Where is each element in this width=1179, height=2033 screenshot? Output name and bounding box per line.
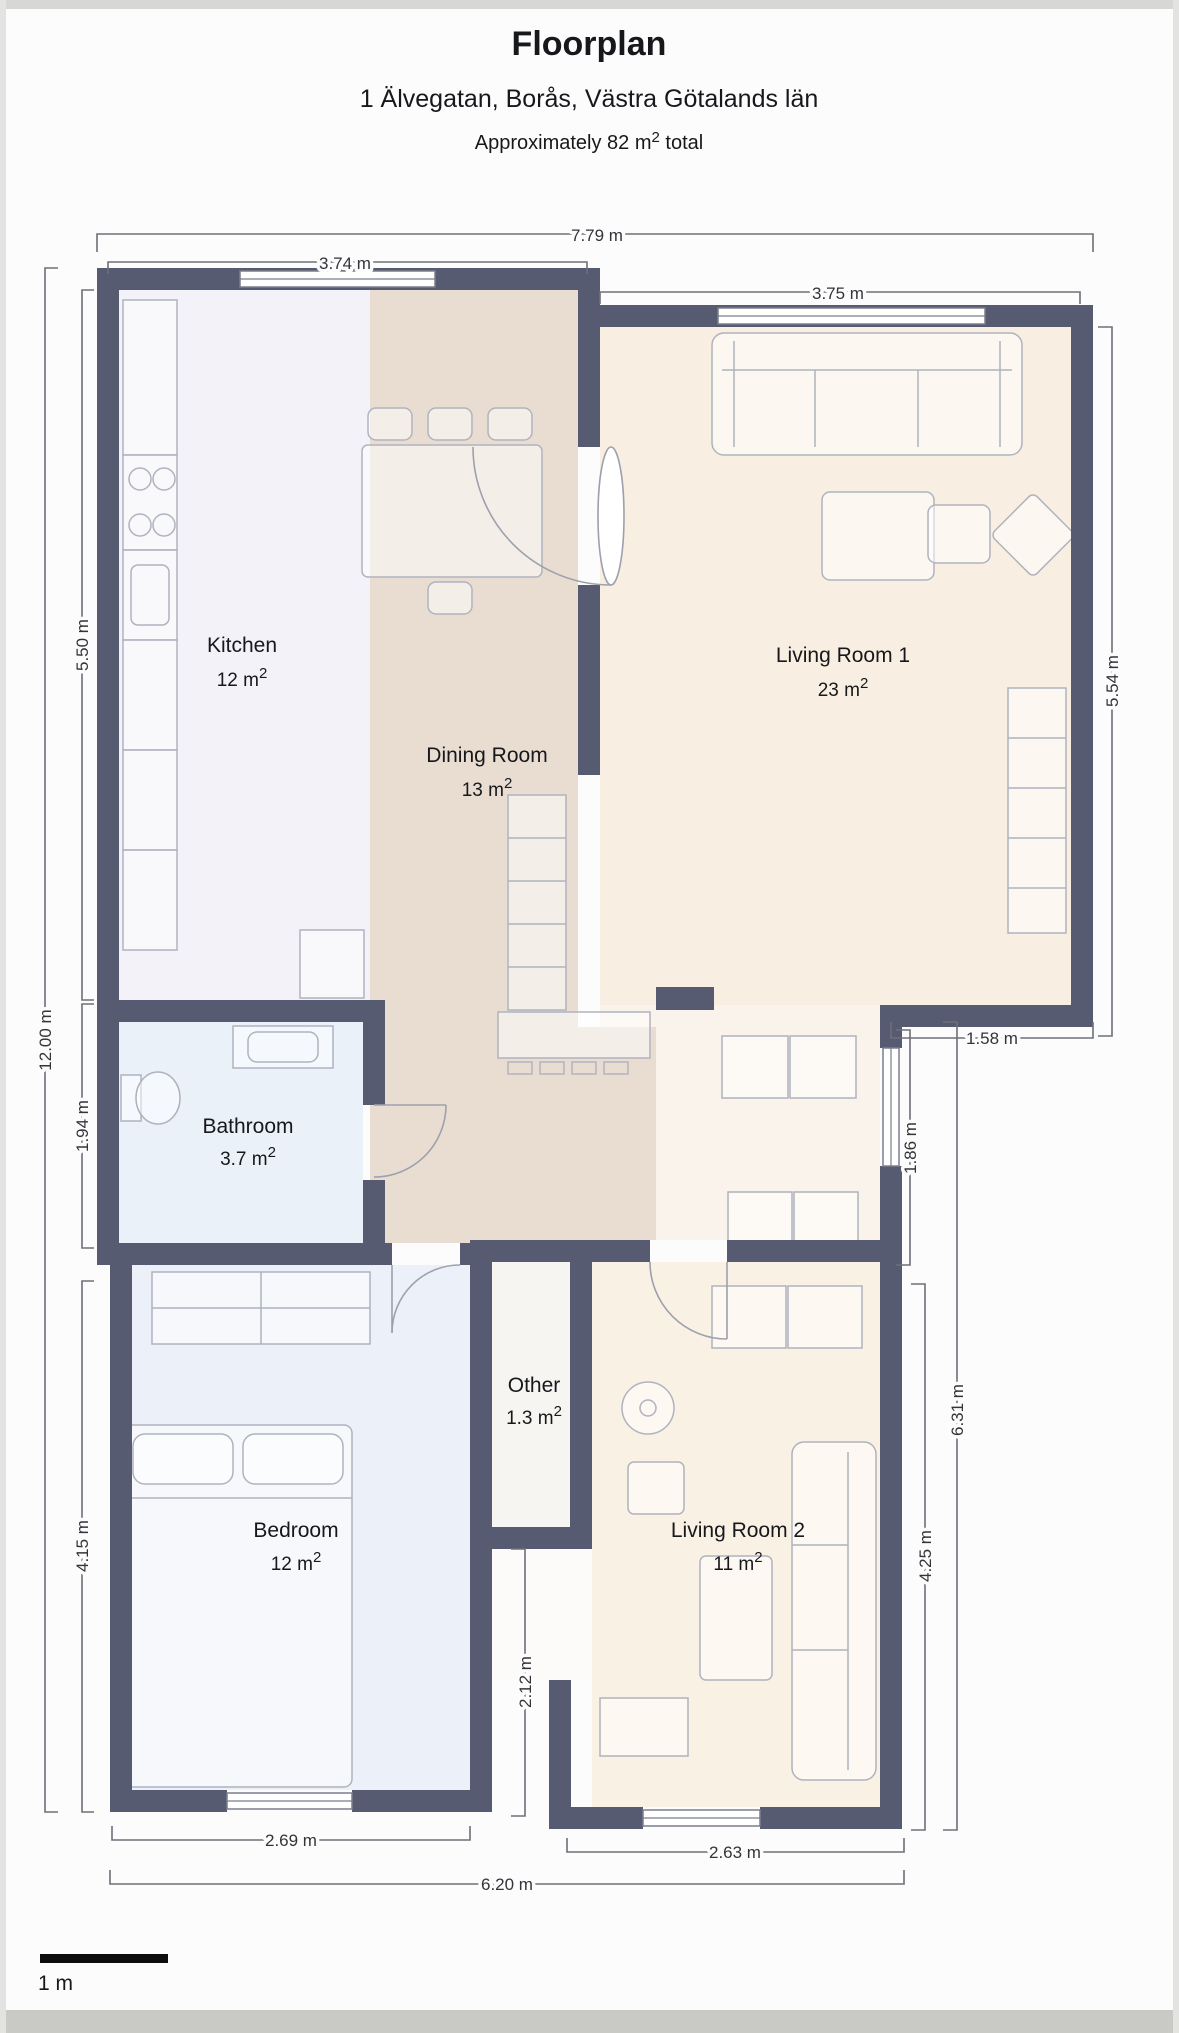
dim-left-kitchen: 5.50 m	[73, 619, 92, 671]
living1-door-leaf	[598, 447, 624, 585]
scale-bar-label: 1 m	[38, 1972, 73, 1995]
dim-right-living1: 5.54 m	[1103, 655, 1122, 707]
dining-label: Dining Room	[426, 744, 547, 767]
bedroom-label: Bedroom	[253, 1519, 338, 1542]
total-area-label: Approximately 82 m2 total	[475, 129, 703, 154]
scale-bar-line	[40, 1954, 168, 1963]
dim-left-bedroom: 4.15 m	[73, 1520, 92, 1572]
scale-bar: 1 m	[38, 1954, 168, 1995]
living2-label: Living Room 2	[671, 1519, 805, 1542]
dim-bottom-bedroom: 2.69 m	[265, 1831, 317, 1850]
dim-left-bathroom: 1.94 m	[73, 1100, 92, 1152]
page-subtitle: 1 Älvegatan, Borås, Västra Götalands län	[360, 85, 819, 113]
dim-right-hall: 1.86 m	[901, 1122, 920, 1174]
left-edge-strip	[0, 0, 6, 2033]
bottom-edge-strip	[0, 2010, 1179, 2033]
page-title: Floorplan	[512, 25, 667, 63]
dim-bottom-total: 6.20 m	[481, 1875, 533, 1894]
floorplan-page: Floorplan 1 Älvegatan, Borås, Västra Göt…	[0, 0, 1179, 2033]
dim-top-right: 3.75 m	[812, 284, 864, 303]
passage-floor	[492, 1549, 592, 1680]
dim-bottom-living2: 2.63 m	[709, 1843, 761, 1862]
dim-mid-passage: 2.12 m	[516, 1656, 535, 1708]
dim-top-total: 7.79 m	[571, 226, 623, 245]
floorplan-drawing: Floorplan 1 Älvegatan, Borås, Västra Göt…	[0, 0, 1179, 2033]
dining-floor-lower	[578, 1027, 656, 1240]
dim-top-left: 3.74 m	[319, 254, 371, 273]
kitchen-label: Kitchen	[207, 634, 277, 657]
living1-label: Living Room 1	[776, 644, 910, 667]
dim-left-total: 12.00 m	[36, 1009, 55, 1070]
top-edge-strip	[0, 0, 1179, 9]
bathroom-label: Bathroom	[202, 1115, 293, 1138]
right-edge-strip	[1173, 0, 1179, 2033]
dim-right-total: 6.31 m	[948, 1384, 967, 1436]
dim-right-step: 1.58 m	[966, 1029, 1018, 1048]
dim-right-living2: 4.25 m	[916, 1530, 935, 1582]
other-label: Other	[508, 1374, 561, 1397]
